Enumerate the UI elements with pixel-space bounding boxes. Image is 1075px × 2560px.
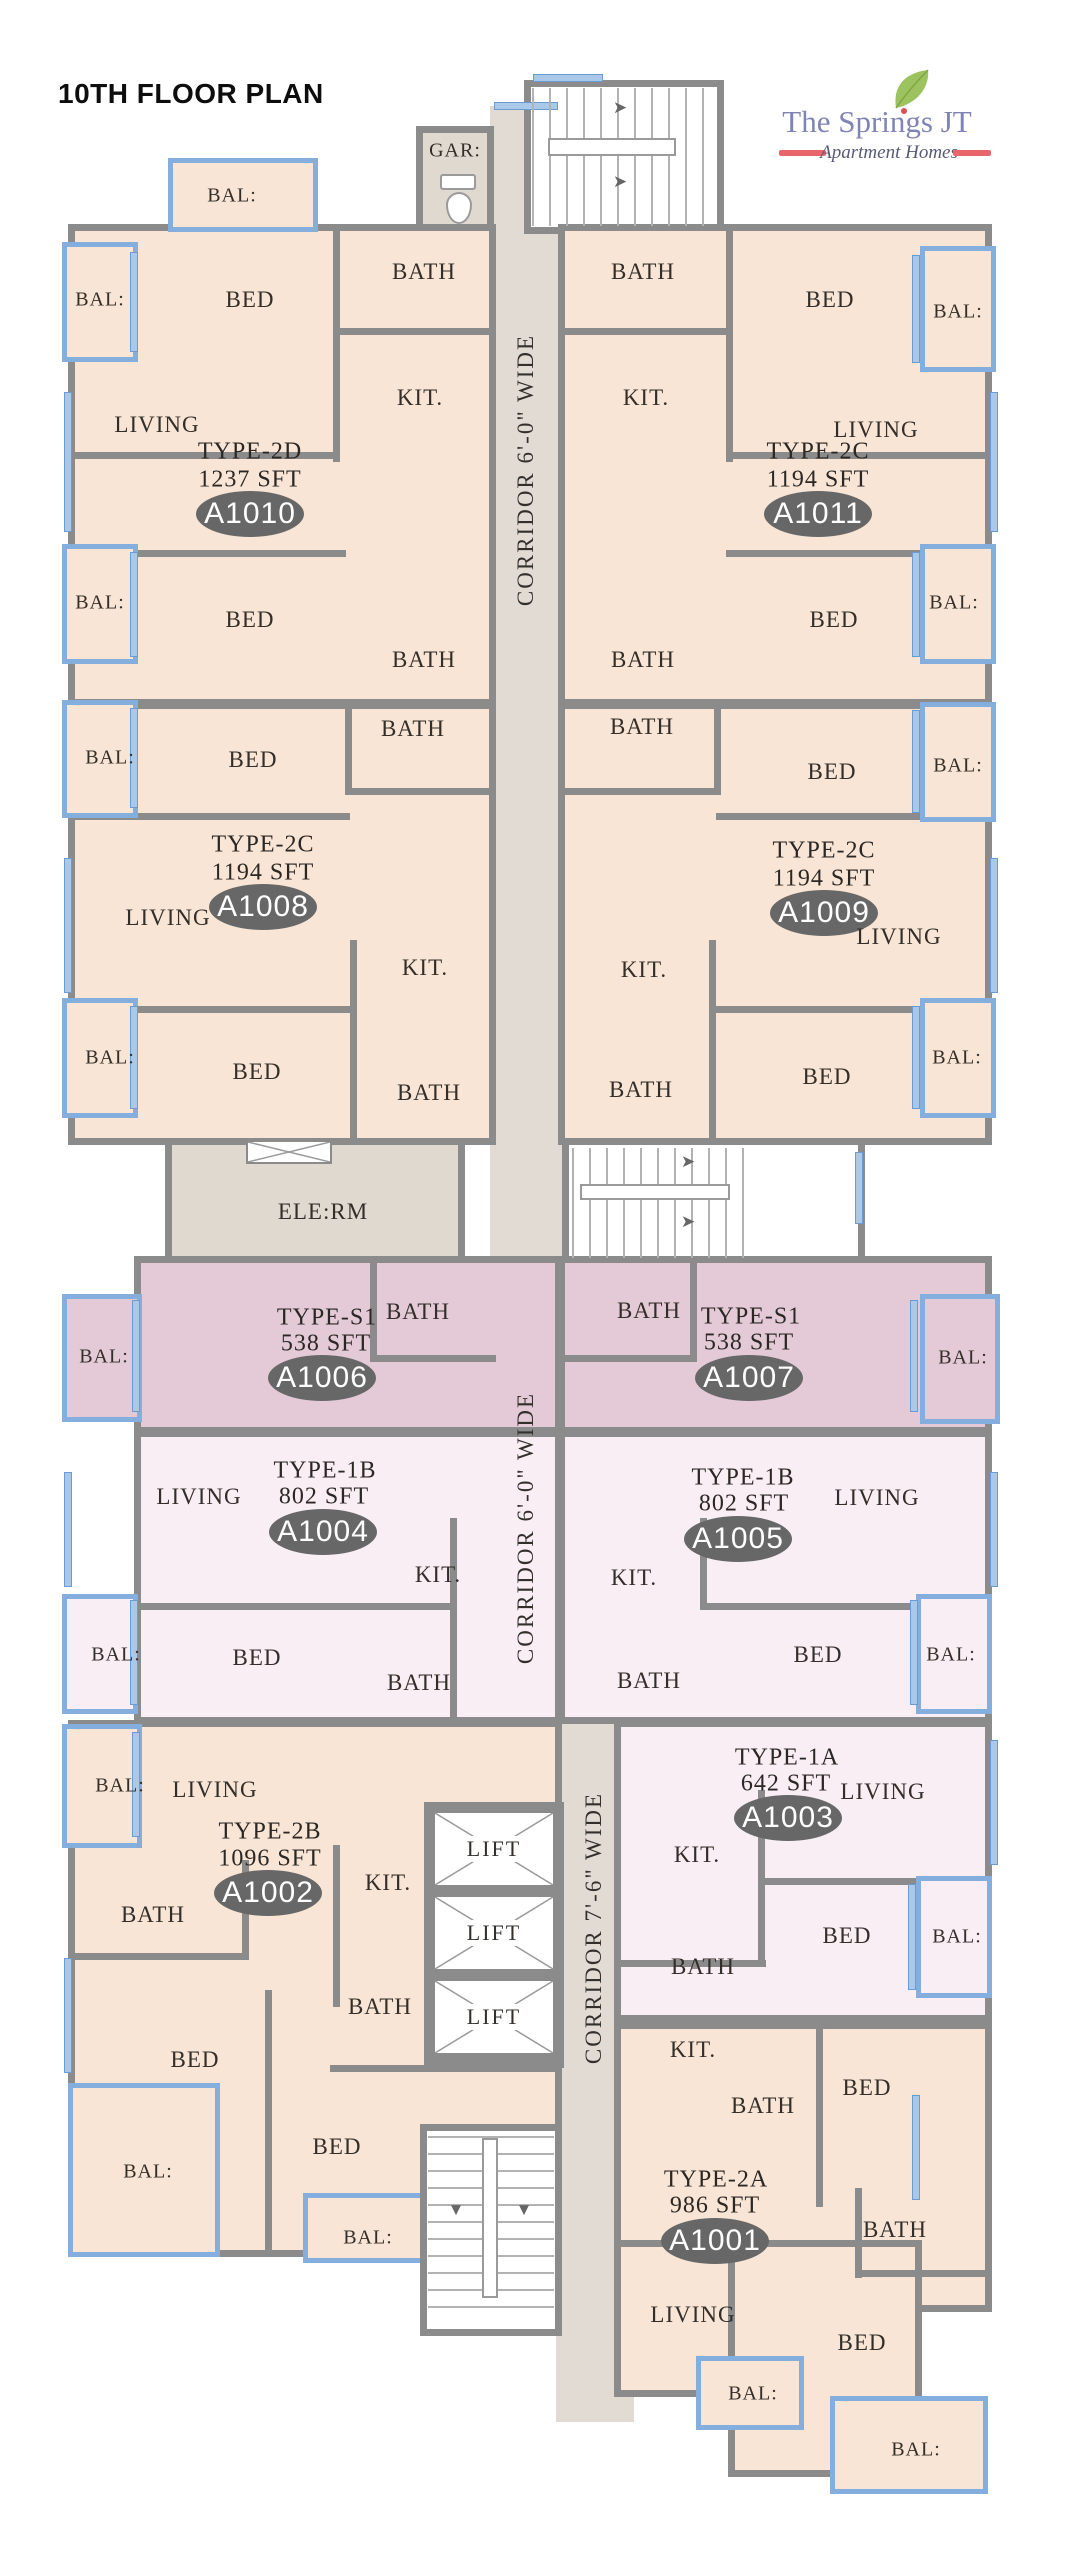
room-label-bath: BATH	[617, 1298, 681, 1324]
window-strip	[855, 1152, 863, 1224]
unit-type-a1010: TYPE-2D	[198, 439, 302, 466]
room-label-kit: KIT.	[415, 1562, 461, 1588]
stair-direction-arrow: ➤	[613, 172, 627, 192]
interior-wall	[450, 1518, 457, 1724]
room-label-bath: BATH	[671, 1954, 735, 1980]
room-label-bed: BED	[803, 1064, 852, 1090]
unit-area-a1004: 802 SFT	[279, 1484, 369, 1511]
room-label-balcony: BAL:	[929, 592, 979, 615]
unit-badge-a1008: A1008	[209, 884, 317, 930]
corridor-label-mid: CORRIDOR 6'-0" WIDE	[513, 1392, 539, 1664]
logo-dash-left	[779, 150, 826, 156]
gar-room-label: GAR:	[429, 140, 481, 163]
unit-type-a1006: TYPE-S1	[277, 1305, 377, 1332]
room-label-balcony: BAL:	[95, 1775, 145, 1798]
ele-rm-label: ELE:RM	[278, 1199, 368, 1225]
room-label-balcony: BAL:	[932, 1047, 982, 1070]
lift-label: LIFT	[462, 1836, 526, 1862]
room-label-living: LIVING	[834, 1485, 919, 1511]
room-label-balcony: BAL:	[91, 1644, 141, 1667]
interior-wall	[855, 2270, 992, 2277]
room-label-bed: BED	[233, 1059, 282, 1085]
interior-wall	[265, 1990, 272, 2257]
unit-badge-a1004: A1004	[269, 1509, 377, 1555]
interior-wall	[558, 328, 726, 335]
window-strip	[990, 858, 998, 993]
room-label-bath: BATH	[397, 1080, 461, 1106]
room-label-bed: BED	[810, 607, 859, 633]
window-strip	[910, 1600, 918, 1705]
room-label-bed: BED	[823, 1923, 872, 1949]
window-strip	[990, 392, 998, 532]
room-label-bath: BATH	[863, 2217, 927, 2243]
window-strip	[64, 1958, 72, 2073]
room-label-living: LIVING	[114, 412, 199, 438]
window-strip	[130, 552, 138, 657]
interior-wall	[68, 1953, 249, 1960]
stair-rail-mid	[580, 1184, 730, 1200]
room-label-kit: KIT.	[670, 2037, 716, 2063]
interior-wall	[709, 940, 716, 1145]
interior-wall	[350, 940, 357, 1145]
room-label-living: LIVING	[650, 2302, 735, 2328]
unit-area-a1005: 802 SFT	[699, 1491, 789, 1518]
duct-x-icon	[248, 1142, 330, 1162]
room-label-bed: BED	[794, 1642, 843, 1668]
room-label-kit: KIT.	[674, 1842, 720, 1868]
stair-rail-bottom	[482, 2138, 498, 2298]
unit-type-a1007: TYPE-S1	[701, 1304, 801, 1331]
interior-wall	[726, 224, 733, 462]
room-label-balcony: BAL:	[207, 185, 257, 208]
room-label-balcony: BAL:	[85, 747, 135, 770]
room-label-bed: BED	[843, 2075, 892, 2101]
window-strip	[130, 252, 138, 352]
unit-type-a1004: TYPE-1B	[274, 1458, 377, 1485]
room-label-balcony: BAL:	[938, 1347, 988, 1370]
interior-wall	[558, 1355, 690, 1362]
unit-area-a1006: 538 SFT	[281, 1331, 371, 1358]
room-label-bath: BATH	[617, 1668, 681, 1694]
unit-type-a1001: TYPE-2A	[664, 2167, 768, 2194]
unit-type-a1002: TYPE-2B	[219, 1819, 322, 1846]
room-label-bath: BATH	[731, 2093, 795, 2119]
stair-direction-arrow: ▼	[519, 2203, 529, 2218]
room-label-bed: BED	[808, 759, 857, 785]
unit-type-a1008: TYPE-2C	[212, 832, 315, 859]
room-label-bath: BATH	[121, 1902, 185, 1928]
room-label-kit: KIT.	[397, 385, 443, 411]
room-label-bath: BATH	[611, 259, 675, 285]
interior-wall	[558, 788, 714, 795]
window-strip	[912, 1006, 920, 1109]
room-label-bed: BED	[171, 2047, 220, 2073]
room-label-balcony: BAL:	[343, 2227, 393, 2250]
unit-area-a1008: 1194 SFT	[212, 860, 314, 887]
room-label-bed: BED	[838, 2330, 887, 2356]
unit-badge-a1010: A1010	[196, 491, 304, 537]
room-label-kit: KIT.	[611, 1565, 657, 1591]
interior-wall	[134, 1603, 456, 1610]
window-strip	[990, 1472, 998, 1587]
room-label-bath: BATH	[386, 1299, 450, 1325]
room-label-bed: BED	[313, 2134, 362, 2160]
room-label-bed: BED	[233, 1645, 282, 1671]
corridor-label-top: CORRIDOR 6'-0" WIDE	[513, 334, 539, 606]
window-strip	[910, 1300, 918, 1412]
room-label-balcony: BAL:	[728, 2383, 778, 2406]
interior-wall	[714, 702, 721, 795]
lift-label: LIFT	[462, 2004, 526, 2030]
unit-area-a1002: 1096 SFT	[218, 1846, 321, 1873]
toilet-tank	[440, 174, 476, 190]
stair-direction-arrow: ➤	[681, 1152, 695, 1172]
logo-name: The Springs JT	[782, 104, 971, 140]
interior-wall	[690, 1256, 697, 1362]
unit-badge-a1003: A1003	[734, 1795, 842, 1841]
unit-area-a1001: 986 SFT	[670, 2193, 760, 2220]
window-strip	[912, 552, 920, 657]
unit-area-a1009: 1194 SFT	[773, 866, 875, 893]
lift-2: LIFT	[432, 1894, 556, 1972]
unit-badge-a1005: A1005	[684, 1516, 792, 1562]
unit-type-a1005: TYPE-1B	[692, 1465, 795, 1492]
room-label-bath: BATH	[392, 259, 456, 285]
page-title: 10TH FLOOR PLAN	[58, 78, 324, 110]
interior-wall	[345, 702, 352, 795]
unit-area-a1011: 1194 SFT	[767, 467, 869, 494]
unit-badge-a1011: A1011	[764, 491, 872, 537]
room-label-bath: BATH	[392, 647, 456, 673]
stair-direction-arrow: ➤	[681, 1212, 695, 1232]
room-label-bed: BED	[806, 287, 855, 313]
stair-direction-arrow: ▼	[451, 2203, 461, 2218]
room-label-bed: BED	[226, 607, 275, 633]
window-strip	[912, 255, 920, 363]
room-label-balcony: BAL:	[891, 2439, 941, 2462]
stair-treads-mid	[572, 1148, 752, 1258]
window-strip	[908, 1884, 916, 1990]
unit-badge-a1002: A1002	[214, 1870, 322, 1916]
room-label-balcony: BAL:	[75, 592, 125, 615]
unit-area-a1007: 538 SFT	[704, 1330, 794, 1357]
window-strip	[64, 858, 72, 993]
room-label-living: LIVING	[833, 417, 918, 443]
interior-wall	[333, 224, 340, 462]
room-label-bed: BED	[229, 747, 278, 773]
unit-badge-a1001: A1001	[661, 2218, 769, 2264]
stair-direction-arrow: ➤	[613, 98, 627, 118]
room-label-bath: BATH	[611, 647, 675, 673]
interior-wall	[816, 2022, 823, 2207]
unit-area-a1010: 1237 SFT	[198, 467, 301, 494]
room-label-bath: BATH	[609, 1077, 673, 1103]
room-label-balcony: BAL:	[75, 289, 125, 312]
room-label-balcony: BAL:	[933, 301, 983, 324]
room-label-kit: KIT.	[402, 955, 448, 981]
room-label-bath: BATH	[348, 1994, 412, 2020]
lift-1: LIFT	[432, 1810, 556, 1888]
room-label-bath: BATH	[610, 714, 674, 740]
interior-wall	[855, 2188, 862, 2278]
room-label-living: LIVING	[856, 924, 941, 950]
room-label-living: LIVING	[172, 1777, 257, 1803]
room-label-kit: KIT.	[621, 957, 667, 983]
room-label-balcony: BAL:	[79, 1346, 129, 1369]
unit-badge-a1006: A1006	[268, 1355, 376, 1401]
room-label-balcony: BAL:	[933, 755, 983, 778]
corridor-label-bottom: CORRIDOR 7'-6" WIDE	[581, 1792, 607, 2064]
interior-wall	[333, 1845, 340, 2007]
floor-plan-canvas: ➤ ➤ ➤ ➤ ▼ ▼ LIFT LIFT LIFT 10TH FLOOR PL…	[0, 0, 1075, 2560]
interior-wall	[333, 328, 496, 335]
interior-wall	[345, 788, 496, 795]
window-strip	[132, 1300, 140, 1412]
unit-area-a1003: 642 SFT	[741, 1771, 831, 1798]
room-label-balcony: BAL:	[932, 1926, 982, 1949]
lift-3: LIFT	[432, 1978, 556, 2056]
window-strip	[912, 2095, 920, 2200]
room-label-living: LIVING	[840, 1779, 925, 1805]
room-label-living: LIVING	[156, 1484, 241, 1510]
unit-badge-a1007: A1007	[695, 1355, 803, 1401]
duct-box	[246, 1140, 332, 1164]
unit-type-a1003: TYPE-1A	[735, 1745, 839, 1772]
window-strip	[64, 1472, 72, 1587]
room-label-bath: BATH	[381, 716, 445, 742]
room-label-balcony: BAL:	[85, 1047, 135, 1070]
room-label-living: LIVING	[125, 905, 210, 931]
unit-type-a1009: TYPE-2C	[773, 838, 876, 865]
lift-label: LIFT	[462, 1920, 526, 1946]
room-label-bed: BED	[226, 287, 275, 313]
room-label-kit: KIT.	[623, 385, 669, 411]
window-strip	[64, 392, 72, 532]
room-label-kit: KIT.	[365, 1870, 411, 1896]
logo-dash-right	[953, 150, 991, 156]
window-strip	[912, 710, 920, 813]
interior-wall	[370, 1355, 496, 1362]
window-strip	[533, 74, 603, 82]
room-label-balcony: BAL:	[926, 1644, 976, 1667]
room-label-bath: BATH	[387, 1670, 451, 1696]
room-label-balcony: BAL:	[123, 2161, 173, 2184]
logo-tagline: Apartment Homes	[820, 142, 958, 164]
window-strip	[990, 1740, 998, 1865]
stair-rail-top	[548, 138, 676, 156]
